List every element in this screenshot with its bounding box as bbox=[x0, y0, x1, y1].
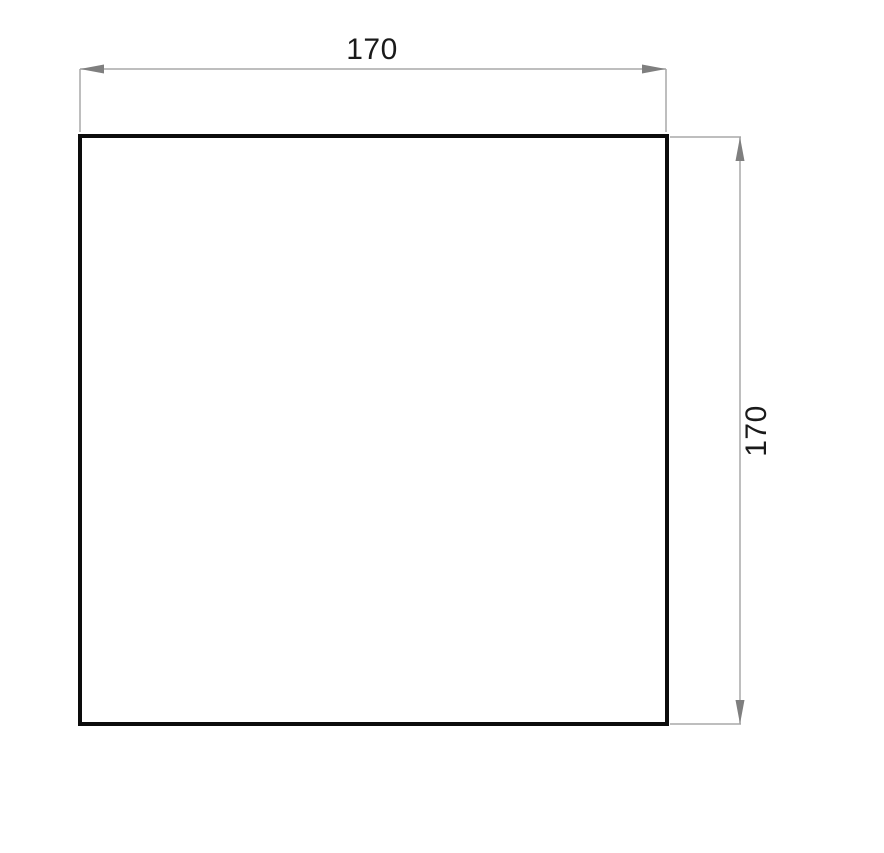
part-outline-square bbox=[78, 134, 669, 726]
arrow-right-icon bbox=[642, 65, 666, 74]
arrow-down-icon bbox=[736, 700, 745, 724]
arrow-up-icon bbox=[736, 137, 745, 161]
width-dimension-label: 170 bbox=[346, 35, 398, 65]
height-dimension-label: 170 bbox=[742, 405, 772, 457]
arrow-left-icon bbox=[80, 65, 104, 74]
drawing-canvas: 170 170 bbox=[0, 0, 884, 853]
